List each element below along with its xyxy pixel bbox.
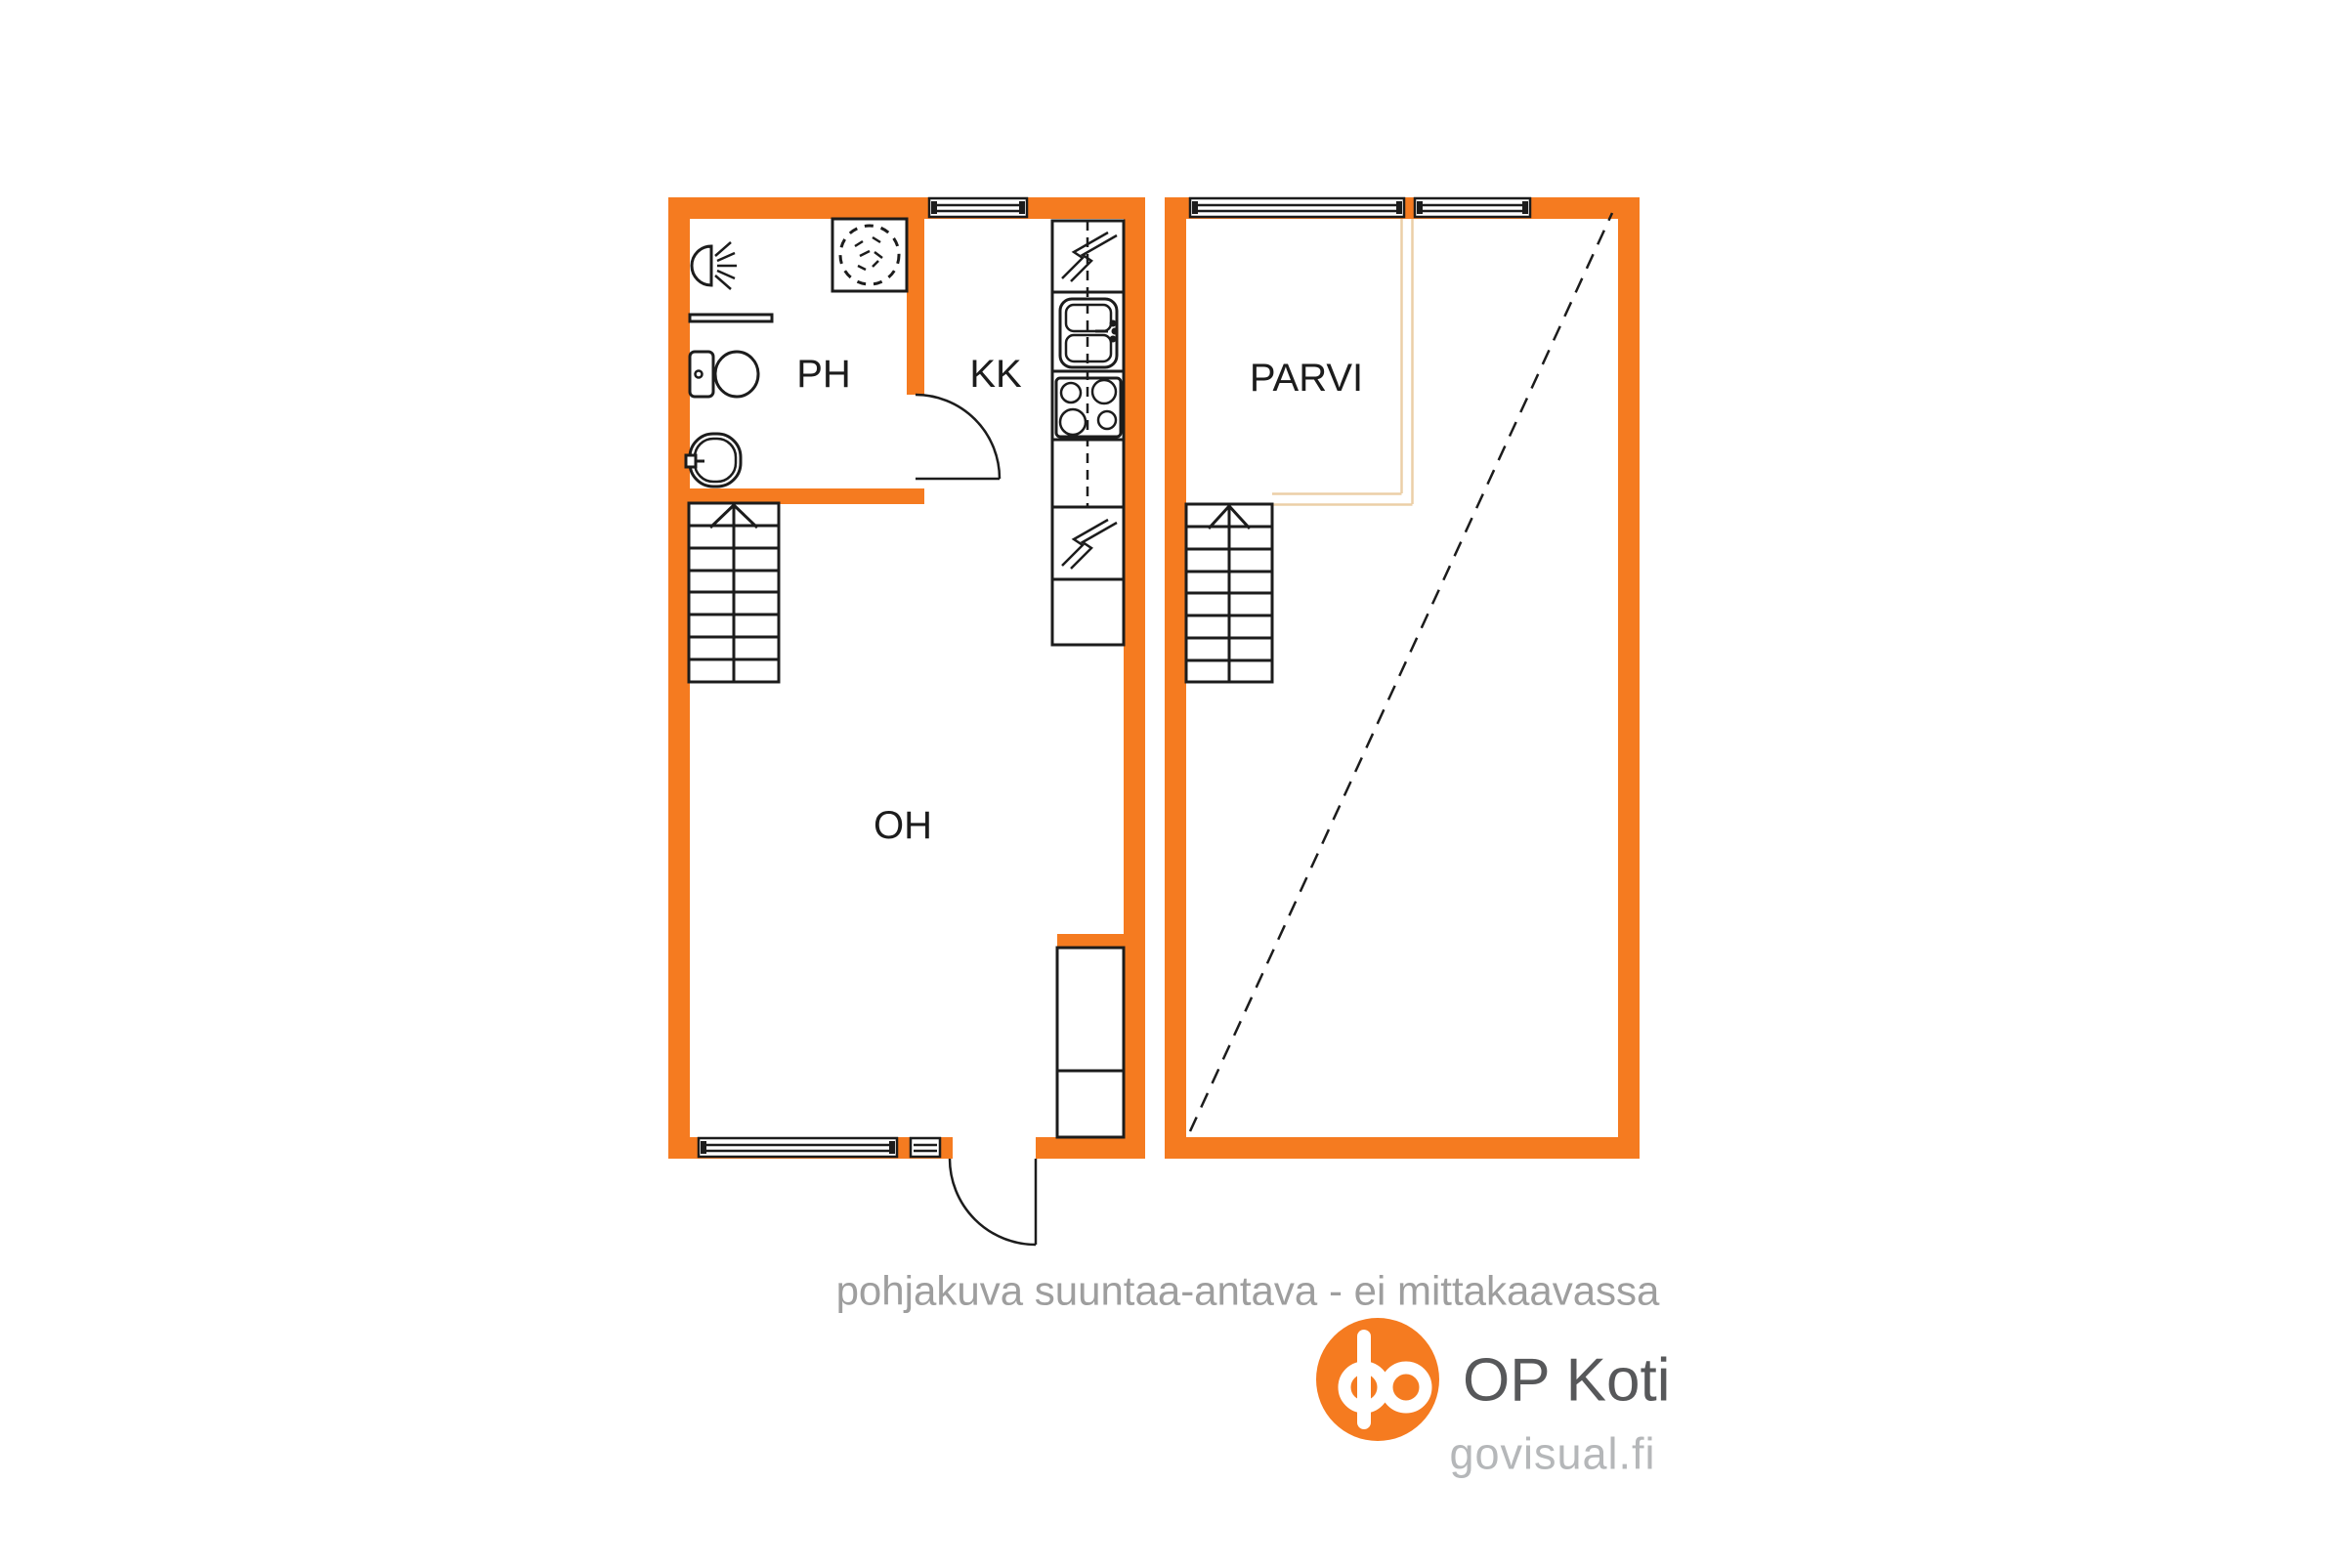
floorplan-drawing: PH KK OH <box>0 0 2345 1563</box>
shelf-icon <box>690 315 772 321</box>
op-koti-logo: OP Koti <box>1316 1318 1671 1441</box>
room-label-kk: KK <box>969 353 1022 396</box>
window <box>1190 198 1404 217</box>
window <box>911 1138 940 1157</box>
site-credit: govisual.fi <box>1449 1429 1655 1479</box>
brand-wordmark: OP Koti <box>1463 1347 1671 1415</box>
window <box>929 198 1027 217</box>
disclaimer-text: pohjakuva suuntaa-antava - ei mittakaava… <box>836 1268 1660 1314</box>
sink-icon <box>686 434 741 487</box>
room-label-oh: OH <box>874 804 932 847</box>
window <box>1415 198 1530 217</box>
washing-machine-icon <box>832 219 907 291</box>
floorplan-page: PH KK OH <box>0 0 2345 1563</box>
ground-floor-unit: PH KK OH <box>668 197 1145 1245</box>
entry-door-opening <box>953 1137 1036 1159</box>
toilet-icon <box>690 352 758 397</box>
entry-door-swing <box>950 1159 1036 1245</box>
room-label-parvi: PARVI <box>1250 357 1363 400</box>
window <box>699 1138 897 1157</box>
kitchen-counter-stub-wall <box>1057 934 1124 948</box>
loft-unit: PARVI <box>1165 197 1640 1159</box>
room-label-ph: PH <box>796 353 851 396</box>
footer: pohjakuva suuntaa-antava - ei mittakaava… <box>836 1268 1671 1479</box>
ph-kk-divider-wall <box>907 219 924 395</box>
